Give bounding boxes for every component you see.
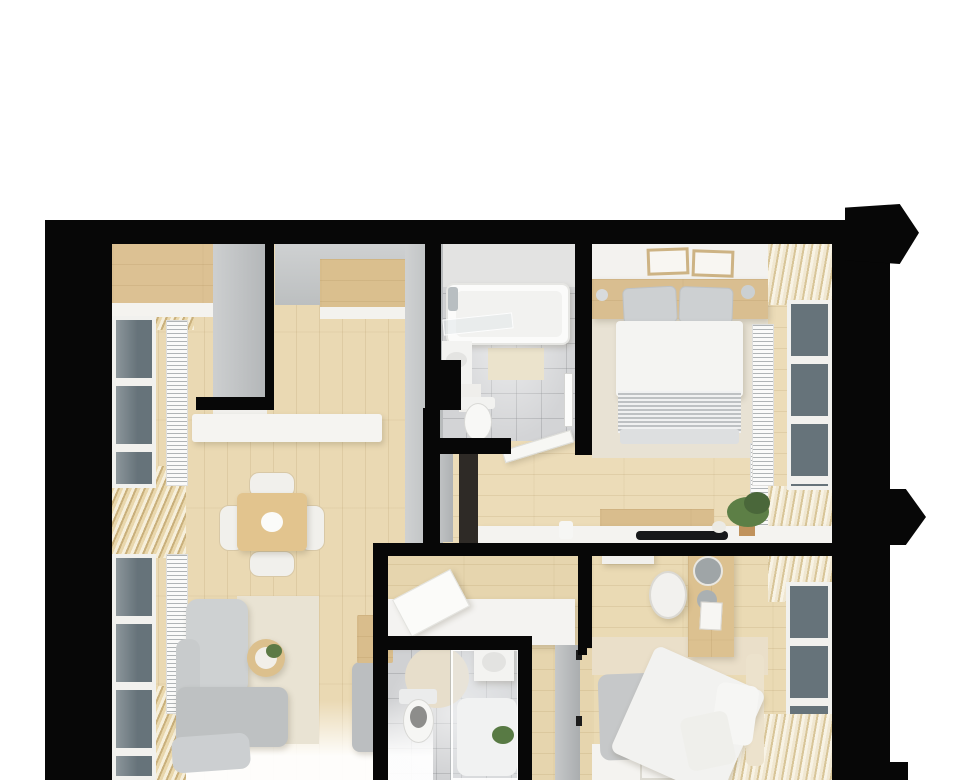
- door-jamb-bedroom-2: [578, 645, 587, 655]
- sofa-cushion: [171, 732, 251, 773]
- door-hinge-bottom: [576, 716, 582, 726]
- wall-left: [45, 220, 112, 780]
- blanket-ribbed-bedroom-1: [618, 391, 741, 433]
- dining-chair-south: [249, 551, 295, 577]
- bath-mat-bathroom-1: [488, 348, 544, 380]
- radiator-bedroom-1: [752, 324, 774, 486]
- vanity-card: [699, 601, 722, 630]
- mirror-slab-dark: [459, 443, 478, 543]
- window-right-2: [786, 582, 832, 722]
- closet-gray: [213, 243, 267, 403]
- window-right-1: [787, 300, 832, 490]
- wall-arrow-top-right: [845, 204, 919, 264]
- kitchen-counter-edge: [112, 303, 224, 317]
- sink-bowl-bathroom-2: [482, 652, 506, 672]
- pillow-bedroom-1-left: [622, 286, 678, 326]
- toilet-1-bowl: [464, 403, 492, 441]
- sideboard-white: [192, 414, 382, 442]
- window-left-1: [112, 316, 156, 488]
- duvet-bedroom-1: [616, 321, 743, 397]
- wall-step-bottom-right: [874, 762, 908, 780]
- dining-plate: [261, 512, 283, 532]
- kitchen-cabinets: [112, 243, 224, 303]
- wall-bathroom-2-right: [518, 636, 532, 780]
- wall-top: [45, 220, 855, 244]
- wall-right: [832, 238, 890, 780]
- toilet-2-seat-opening: [410, 706, 427, 728]
- mug-white: [559, 521, 573, 539]
- wall-corridor-vertical: [423, 408, 440, 545]
- plant-bathroom-2: [492, 726, 514, 744]
- bath-faucet: [448, 287, 458, 311]
- vanity-chair: [649, 571, 687, 619]
- wall-closet-vertical: [265, 235, 274, 410]
- wall-closet-horizontal: [196, 397, 274, 410]
- wall-arrow-mid-right: [884, 489, 926, 545]
- wall-middle-horizontal: [373, 543, 832, 556]
- plant-corridor-leaves-2: [744, 492, 770, 514]
- wall-bathroom-1-right: [575, 238, 592, 455]
- sconce-left: [596, 289, 608, 301]
- picture-frame-1: [647, 247, 690, 275]
- apartment-floor-plan: [0, 0, 960, 780]
- pillow-bedroom-1-right: [678, 286, 733, 325]
- wall-nook-right: [578, 556, 592, 648]
- vanity-mirror-large: [693, 556, 723, 586]
- window-left-2: [112, 554, 156, 780]
- sconce-right: [741, 285, 755, 299]
- wall-nook-left: [373, 556, 388, 780]
- wall-bathroom-1-step: [425, 360, 461, 410]
- blinds-bedroom-1-top: [768, 243, 832, 305]
- plant-living: [266, 644, 282, 658]
- picture-frame-2: [692, 249, 735, 277]
- deco-shell: [712, 521, 726, 533]
- blanket-edge-bedroom-1: [620, 429, 739, 444]
- bathroom-1-wall-band: [441, 243, 575, 287]
- laptop-tray-black: [636, 531, 728, 540]
- door-gray-bathroom-2: [555, 645, 580, 780]
- radiator-left-1: [166, 320, 188, 486]
- towel-rail: [564, 373, 573, 427]
- wall-bathroom-2-top: [388, 636, 532, 650]
